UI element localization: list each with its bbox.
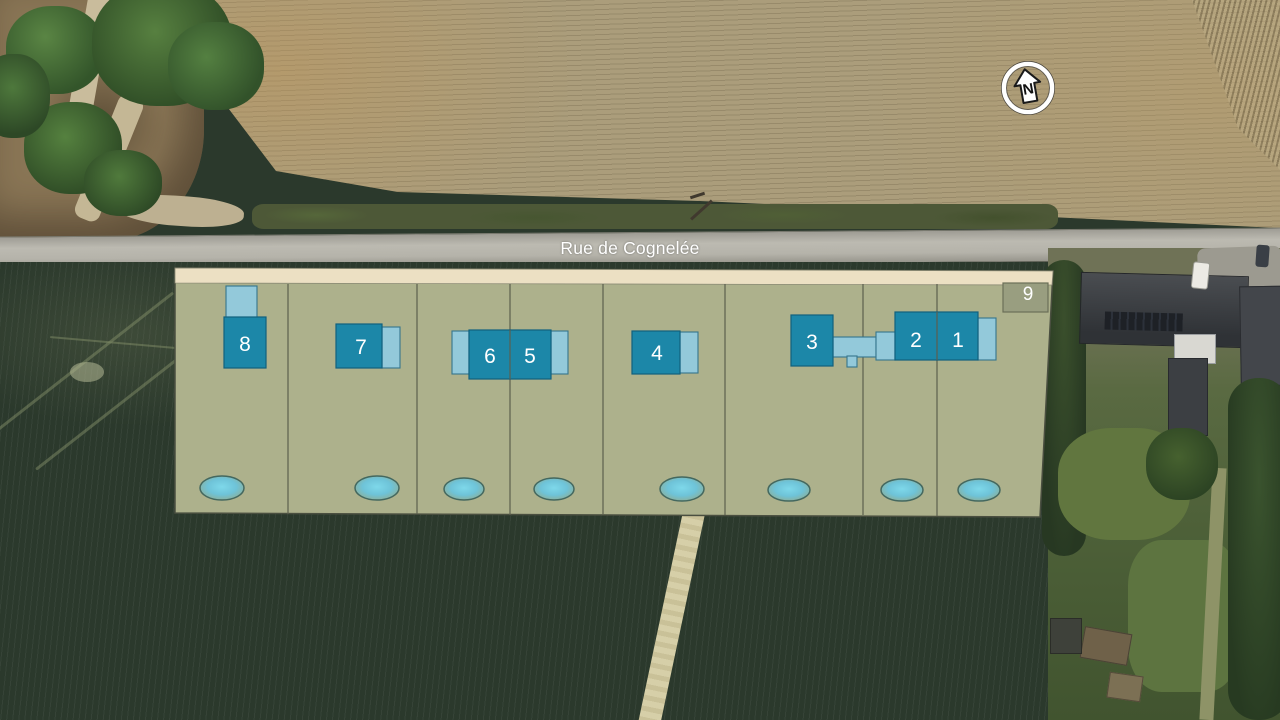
plan-frontage-strip (175, 268, 1053, 285)
garage-lot-7 (382, 327, 400, 368)
lot-label-5: 5 (524, 345, 536, 368)
pond-lot-4 (660, 477, 704, 501)
lot-label-3: 3 (806, 331, 818, 354)
site-plan-map[interactable]: 1 2 3 4 5 6 7 8 9 Rue de Cognelée N (0, 0, 1280, 720)
lot-label-4: 4 (651, 342, 663, 365)
lot-label-1: 1 (952, 329, 964, 352)
pond-lot-2 (881, 479, 923, 501)
development-plan-overlay: 1 2 3 4 5 6 7 8 9 (0, 0, 1280, 720)
pond-lot-3 (768, 479, 810, 501)
street-name-label: Rue de Cognelée (540, 238, 720, 259)
north-arrow-icon: N (1000, 60, 1056, 116)
pond-lot-1 (958, 479, 1000, 501)
lot-label-7: 7 (355, 336, 367, 359)
pond-lot-8 (200, 476, 244, 500)
pond-lot-7 (355, 476, 399, 500)
garage-lot-8 (226, 286, 257, 318)
pond-lot-5 (534, 478, 574, 500)
link-lot-3 (833, 337, 876, 357)
garage-lot-6 (452, 331, 469, 374)
garage-lot-1 (978, 318, 996, 360)
garage-lot-5 (551, 331, 568, 374)
plan-parcel-area (175, 268, 1053, 517)
lot-label-9: 9 (1023, 284, 1034, 305)
link-step-lot-3 (847, 356, 857, 367)
lot-label-8: 8 (239, 333, 251, 356)
north-arrow-glyph: N (1012, 67, 1043, 104)
pond-lot-6 (444, 478, 484, 500)
lot-label-2: 2 (910, 329, 922, 352)
garage-lot-2 (876, 332, 895, 360)
lot-label-6: 6 (484, 345, 496, 368)
garage-lot-4 (680, 332, 698, 373)
